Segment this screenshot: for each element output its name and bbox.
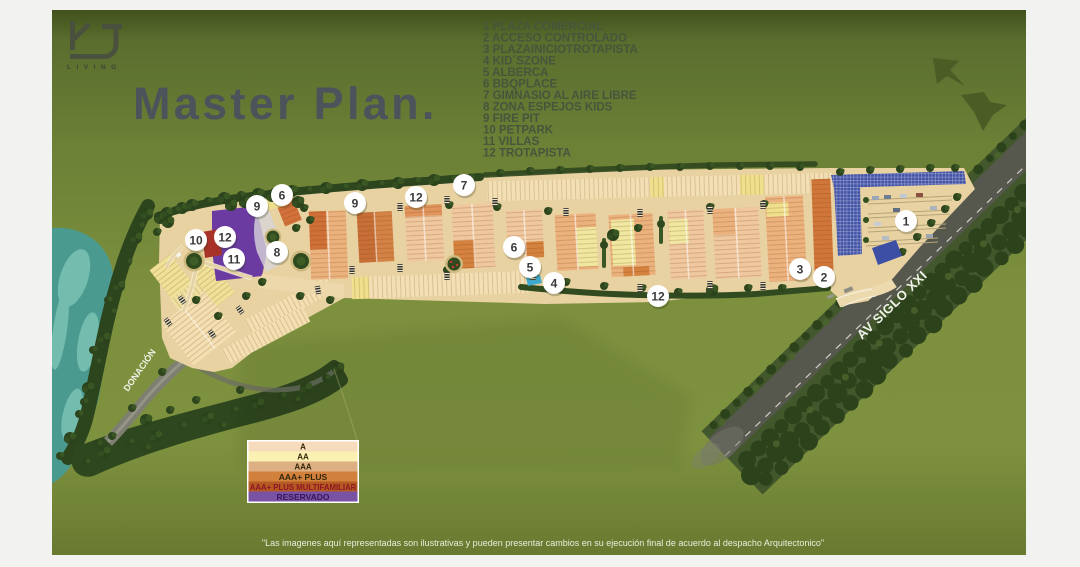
svg-text:6: 6 — [511, 241, 518, 255]
svg-text:"Las imagenes aquí representad: "Las imagenes aquí representadas son ilu… — [262, 538, 824, 548]
svg-text:12: 12 — [218, 231, 232, 245]
svg-text:8: 8 — [274, 246, 281, 260]
svg-text:7 GIMNASIO AL AIRE LIBRE: 7 GIMNASIO AL AIRE LIBRE — [483, 90, 637, 102]
svg-text:1: 1 — [903, 215, 910, 229]
svg-text:10 PETPARK: 10 PETPARK — [483, 125, 554, 137]
svg-text:RESERVADO: RESERVADO — [276, 492, 329, 502]
svg-text:9: 9 — [352, 197, 359, 211]
svg-text:Master Plan.: Master Plan. — [133, 78, 438, 129]
svg-text:4: 4 — [551, 277, 558, 291]
svg-text:9 FIRE PIT: 9 FIRE PIT — [483, 113, 540, 125]
svg-text:AAA+ PLUS MULTIFAMILIAR: AAA+ PLUS MULTIFAMILIAR — [250, 483, 357, 492]
svg-text:2 ACCESO CONTROLADO: 2 ACCESO CONTROLADO — [483, 33, 627, 45]
svg-text:3 PLAZAINICIOTROTAPISTA: 3 PLAZAINICIOTROTAPISTA — [483, 44, 638, 56]
svg-text:AAA+ PLUS: AAA+ PLUS — [279, 472, 328, 482]
svg-text:6 BBQPLACE: 6 BBQPLACE — [483, 79, 557, 91]
svg-text:4 KID´SZONE: 4 KID´SZONE — [483, 56, 556, 68]
svg-text:LIVING: LIVING — [67, 64, 122, 71]
svg-text:2: 2 — [821, 271, 828, 285]
svg-text:5 ALBERCA: 5 ALBERCA — [483, 67, 548, 79]
svg-text:AAA: AAA — [294, 463, 312, 472]
svg-text:11: 11 — [228, 253, 241, 267]
svg-text:12: 12 — [409, 191, 423, 205]
svg-text:5: 5 — [527, 261, 534, 275]
svg-text:1 PLAZA COMERCIAL: 1 PLAZA COMERCIAL — [483, 21, 603, 33]
svg-text:12 TROTAPISTA: 12 TROTAPISTA — [483, 148, 571, 160]
svg-text:8 ZONA ESPEJOS KIDS: 8 ZONA ESPEJOS KIDS — [483, 102, 613, 114]
svg-text:3: 3 — [797, 263, 804, 277]
svg-text:10: 10 — [189, 234, 203, 248]
svg-text:12: 12 — [651, 290, 665, 304]
svg-text:AA: AA — [297, 453, 309, 462]
svg-text:A: A — [300, 443, 306, 452]
svg-text:7: 7 — [461, 179, 468, 193]
svg-text:11 VILLAS: 11 VILLAS — [483, 136, 540, 148]
svg-text:6: 6 — [279, 189, 286, 203]
svg-text:9: 9 — [254, 200, 261, 214]
